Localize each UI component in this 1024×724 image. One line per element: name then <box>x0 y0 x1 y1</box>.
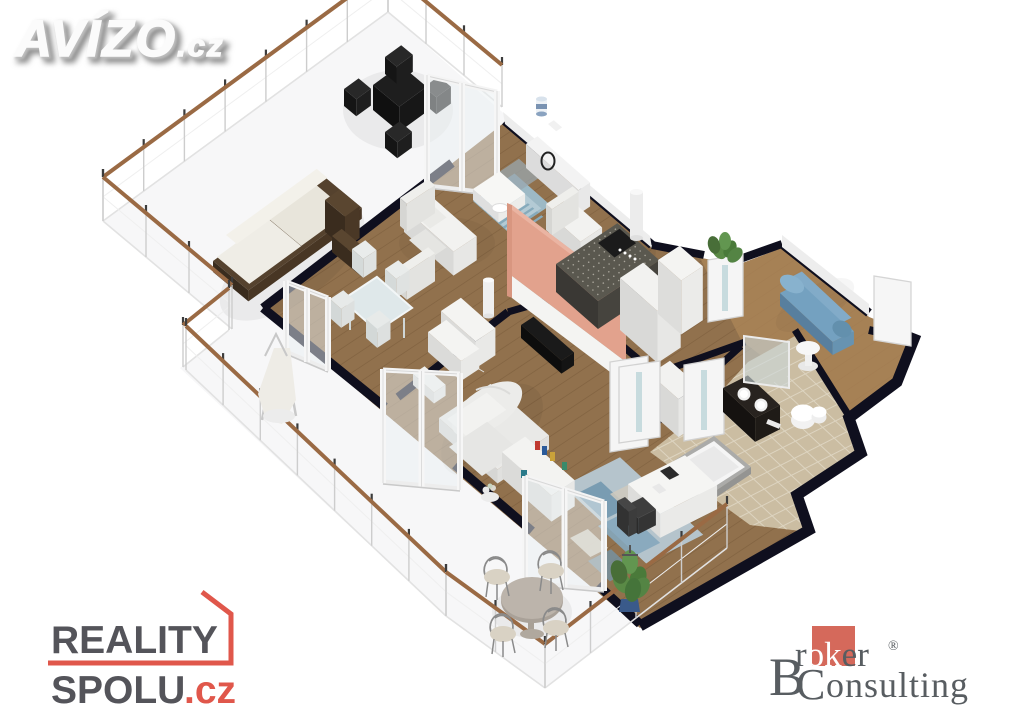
svg-text:C: C <box>796 660 825 709</box>
svg-text:REALITY: REALITY <box>51 619 218 662</box>
svg-text:SPOLU: SPOLU <box>51 669 185 712</box>
svg-text:.cz: .cz <box>184 669 236 712</box>
svg-text:®: ® <box>888 639 899 654</box>
svg-text:onsulting: onsulting <box>826 665 969 705</box>
